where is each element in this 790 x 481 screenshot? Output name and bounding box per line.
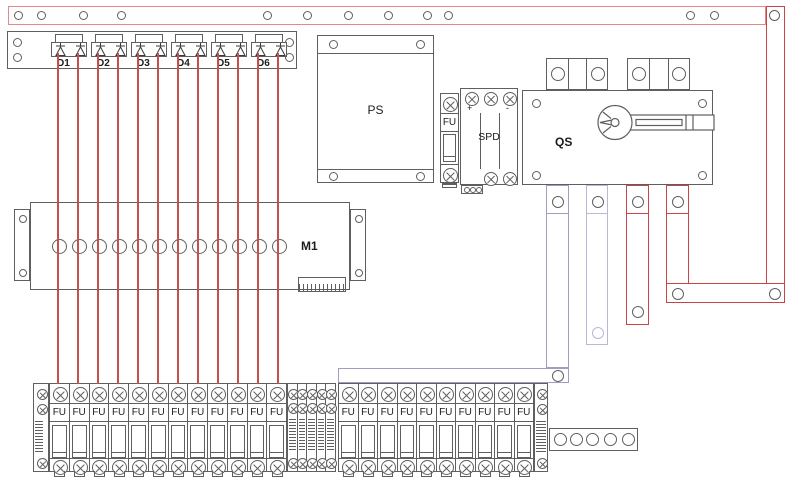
tab-divider: [568, 59, 569, 91]
aux-hole: [604, 433, 617, 446]
terminal-bottom-section: [50, 458, 69, 474]
terminal-fuse-section: [417, 422, 436, 458]
fuse-terminal-label: FU: [70, 404, 89, 422]
diode-label: D5: [217, 58, 230, 69]
fuse-terminal-label: FU: [378, 404, 397, 422]
fuse-terminal-label: FU: [437, 404, 456, 422]
terminal-top-section: [398, 384, 417, 404]
clamp-spring: [327, 419, 334, 451]
fuse-window: [380, 425, 395, 458]
terminal-fuse-section: [437, 422, 456, 458]
screw-terminal-icon: [250, 387, 265, 402]
monitor-module-flange-right: [350, 209, 366, 281]
feedthrough-terminal: [317, 384, 327, 471]
terminal-bottom-section: [417, 458, 436, 474]
wire-hole: [192, 239, 207, 254]
fuse-terminal-label: FU: [398, 404, 417, 422]
diode-symbol-icon: [194, 43, 207, 57]
screw-terminal-icon: [326, 403, 337, 414]
clamp-spring: [308, 419, 315, 451]
rail-hole: [444, 11, 453, 20]
fuse-window: [131, 425, 146, 458]
wire-hole: [272, 239, 287, 254]
fuse-terminal: FU: [169, 384, 189, 471]
wire-hole: [252, 239, 267, 254]
tab-divider: [649, 59, 650, 91]
terminal-bottom-section: [515, 458, 534, 474]
feedthrough-terminal: [288, 384, 298, 471]
screw-terminal-icon: [231, 460, 246, 475]
spd-plus-mark: +: [467, 103, 472, 113]
screw-terminal-icon: [326, 458, 337, 469]
fuse-window: [439, 425, 454, 458]
clamp-spring: [299, 419, 306, 451]
fuse-terminal-label: FU: [90, 404, 109, 422]
mounting-hole: [698, 171, 707, 180]
terminal-fuse-section: [339, 422, 358, 458]
terminal-fuse-section: [248, 422, 267, 458]
diode-bracket: [135, 34, 163, 42]
screw-terminal-icon: [503, 172, 517, 186]
terminal-fuse-section: [188, 422, 207, 458]
fuse-bottom-section: [441, 164, 458, 185]
busbar-hole: [632, 306, 644, 318]
busbar-hole: [672, 288, 684, 300]
fuse-window: [341, 425, 356, 458]
mounting-hole: [532, 171, 541, 180]
screw-terminal-icon: [381, 387, 396, 402]
fuse-terminal: FU: [90, 384, 110, 471]
fuse-terminal-label: FU: [50, 404, 69, 422]
busbar-hole: [769, 288, 781, 300]
terminal-fuse-section: [149, 422, 168, 458]
terminal-bottom-section: [456, 458, 475, 474]
spd-module: + - SPD: [460, 88, 518, 185]
terminal-fuse-section: [208, 422, 227, 458]
fuse-window: [497, 425, 512, 458]
screw-terminal-icon: [439, 460, 454, 475]
screw-terminal-icon: [73, 387, 88, 402]
terminal-top-section: [188, 384, 207, 404]
busbar-hole: [592, 327, 604, 339]
right-red-busbar: [766, 6, 785, 303]
busbar-horizontal-link: [666, 283, 785, 303]
power-supply-box: PS: [317, 35, 434, 183]
mounting-hole: [416, 172, 425, 181]
diode-label: D1: [57, 58, 70, 69]
terminal-bottom-section: [267, 458, 286, 474]
flange-line: [318, 53, 433, 54]
terminal-bottom-section: [359, 458, 378, 474]
screw-terminal-icon: [326, 389, 337, 400]
diode-symbol-icon: [154, 43, 167, 57]
screw-terminal-icon: [152, 460, 167, 475]
screw-terminal-icon: [537, 458, 548, 469]
power-supply-label: PS: [318, 103, 433, 117]
terminal-top-section: [515, 384, 534, 404]
fuse-terminal-label: FU: [228, 404, 247, 422]
terminal-fuse-section: [50, 422, 69, 458]
screw-terminal-icon: [498, 387, 513, 402]
aux-hole: [554, 433, 567, 446]
screw-terminal-icon: [250, 460, 265, 475]
mounting-hole: [329, 40, 338, 49]
screw-terminal-icon: [400, 460, 415, 475]
screw-terminal-icon: [400, 387, 415, 402]
busbar-positive-1: [626, 185, 649, 325]
terminal-top-section: [378, 384, 397, 404]
screw-terminal-icon: [361, 387, 376, 402]
terminal-hole: [551, 67, 565, 81]
screw-terminal-icon: [270, 460, 285, 475]
screw-terminal-icon: [37, 389, 48, 400]
terminal-top-section: [50, 384, 69, 404]
terminal-hole: [632, 67, 646, 81]
terminal-bottom-section: [188, 458, 207, 474]
clamp-spring: [289, 419, 296, 451]
comb-connector: [298, 277, 346, 292]
terminal-fuse-section: [109, 422, 128, 458]
diode-bracket: [95, 34, 123, 42]
rail-hole: [14, 11, 23, 20]
spd-minus-mark: -: [506, 103, 509, 113]
terminal-bottom-section: [129, 458, 148, 474]
terminal-bottom-section: [398, 458, 417, 474]
screw-terminal-icon: [211, 460, 226, 475]
switch-terminal-tabs-top-right: [627, 58, 690, 90]
spd-pigtail-connector: [461, 185, 483, 194]
screw-terminal-icon: [92, 460, 107, 475]
terminal-bottom-section: [169, 458, 188, 474]
terminal-fuse-section: [398, 422, 417, 458]
busbar-hole: [672, 196, 684, 208]
wire-hole: [172, 239, 187, 254]
terminal-bottom-section: [109, 458, 128, 474]
busbar-negative-1: [546, 185, 569, 368]
switch-rotary-handle: [596, 103, 718, 143]
diode-symbol-icon: [254, 43, 267, 57]
fuse-terminal: FU: [417, 384, 437, 471]
fuse-terminal-label: FU: [359, 404, 378, 422]
fuse-window: [478, 425, 493, 458]
terminal-fuse-section: [90, 422, 109, 458]
fuse-window: [443, 134, 456, 162]
tab-divider: [668, 59, 669, 91]
terminal-top-section: [248, 384, 267, 404]
fuse-window: [361, 425, 376, 458]
wire-hole: [212, 239, 227, 254]
fuse-window: [171, 425, 186, 458]
terminal-top-section: [109, 384, 128, 404]
fuse-terminal: FU: [437, 384, 457, 471]
rail-hole: [710, 11, 719, 20]
terminal-top-section: [359, 384, 378, 404]
terminal-top-section: [149, 384, 168, 404]
mounting-hole: [19, 215, 27, 223]
comb-teeth: [299, 284, 345, 291]
fuse-terminal-label: FU: [208, 404, 227, 422]
terminal-bottom-section: [149, 458, 168, 474]
feeder-bar-group2: [338, 368, 569, 383]
screw-terminal-icon: [420, 460, 435, 475]
terminal-bottom-section: [70, 458, 89, 474]
fuse-terminal: FU: [476, 384, 496, 471]
feedthrough-terminal: [307, 384, 317, 471]
fuse-terminal: FU: [456, 384, 476, 471]
terminal-top-section: [456, 384, 475, 404]
rail-hole: [37, 11, 46, 20]
feedthrough-terminal: [298, 384, 308, 471]
aux-hole: [570, 433, 583, 446]
diode-bracket: [55, 34, 83, 42]
screw-terminal-icon: [517, 387, 532, 402]
fuse-terminal-label: FU: [188, 404, 207, 422]
monitor-module-body: M1: [30, 202, 350, 290]
terminal-top-section: [476, 384, 495, 404]
diode-module: [131, 42, 167, 57]
rail-hole: [117, 11, 126, 20]
busbar-hole: [592, 196, 604, 208]
wire-hole: [152, 239, 167, 254]
terminal-hole: [672, 67, 686, 81]
mounting-hole: [416, 40, 425, 49]
terminal-top-section: [169, 384, 188, 404]
mounting-hole: [13, 38, 22, 47]
fuse-terminal-label: FU: [476, 404, 495, 422]
terminal-fuse-section: [129, 422, 148, 458]
wire-hole: [52, 239, 67, 254]
diode-module: [211, 42, 247, 57]
screw-terminal-icon: [537, 404, 548, 415]
terminal-fuse-section: [515, 422, 534, 458]
terminal-top-section: [129, 384, 148, 404]
screw-terminal-icon: [37, 404, 48, 415]
diode-symbol-icon: [94, 43, 107, 57]
diode-symbol-icon: [54, 43, 67, 57]
tab-divider: [586, 59, 587, 91]
diode-module: [171, 42, 207, 57]
fuse-window: [230, 425, 245, 458]
terminal-bottom-section: [228, 458, 247, 474]
fuse-window: [151, 425, 166, 458]
screw-terminal-icon: [231, 387, 246, 402]
terminal-top-section: [437, 384, 456, 404]
terminal-bottom-section: [90, 458, 109, 474]
screw-terminal-icon: [191, 387, 206, 402]
fuse-terminal-group-2: FUFUFUFUFUFUFUFUFUFU: [338, 383, 534, 472]
fuse-window: [190, 425, 205, 458]
terminal-bottom-section: [378, 458, 397, 474]
fuse-terminal-label: FU: [515, 404, 534, 422]
feedthrough-terminal: [326, 384, 335, 471]
screw-terminal-icon: [537, 389, 548, 400]
fuse-terminal: FU: [228, 384, 248, 471]
screw-terminal-icon: [381, 460, 396, 475]
connector-hole: [476, 187, 482, 193]
diode-symbol-icon: [234, 43, 247, 57]
tab-joint-line: [627, 213, 648, 214]
fuse-terminal: FU: [129, 384, 149, 471]
screw-terminal-icon: [478, 387, 493, 402]
screw-terminal-icon: [270, 387, 285, 402]
fuse-window: [400, 425, 415, 458]
terminal-top-section: [267, 384, 286, 404]
screw-terminal-icon: [73, 460, 88, 475]
screw-terminal-icon: [112, 387, 127, 402]
screw-terminal-icon: [132, 460, 147, 475]
terminal-fuse-section: [359, 422, 378, 458]
screw-terminal-icon: [459, 460, 474, 475]
terminal-fuse-section: [378, 422, 397, 458]
disconnect-switch-label: QS: [555, 135, 572, 149]
fuse-terminal-label: FU: [267, 404, 286, 422]
busbar-hole: [552, 370, 564, 382]
wire-hole: [72, 239, 87, 254]
fuse-terminal-label: FU: [495, 404, 514, 422]
terminal-bottom-section: [339, 458, 358, 474]
fuse-terminal: FU: [109, 384, 129, 471]
screw-terminal-icon: [37, 458, 48, 469]
rail-hole: [303, 11, 312, 20]
screw-terminal-icon: [53, 387, 68, 402]
fuse-terminal: FU: [70, 384, 90, 471]
terminal-top-section: [228, 384, 247, 404]
screw-terminal-icon: [342, 460, 357, 475]
screw-terminal-icon: [361, 460, 376, 475]
mounting-hole: [355, 215, 363, 223]
terminal-bottom-section: [248, 458, 267, 474]
fuse-terminal: FU: [149, 384, 169, 471]
screw-terminal-icon: [132, 387, 147, 402]
fuse-window: [111, 425, 126, 458]
screw-terminal-icon: [478, 460, 493, 475]
busbar-hole: [552, 196, 564, 208]
terminal-fuse-section: [267, 422, 286, 458]
mounting-hole: [355, 269, 363, 277]
screw-terminal-icon: [112, 460, 127, 475]
screw-terminal-icon: [171, 387, 186, 402]
fuse-window: [419, 425, 434, 458]
diode-label: D3: [137, 58, 150, 69]
fuse-window: [517, 425, 532, 458]
busbar-negative-2: [586, 185, 608, 345]
tab-joint-line: [547, 213, 568, 214]
mounting-hole: [19, 269, 27, 277]
fuse-window: [210, 425, 225, 458]
terminal-top-section: [90, 384, 109, 404]
fuse-terminal: FU: [495, 384, 515, 471]
tab-joint-line: [667, 213, 688, 214]
diode-panel: D1D2D3D4D5D6: [7, 31, 297, 69]
screw-terminal-icon: [191, 460, 206, 475]
aux-hole: [622, 433, 635, 446]
terminal-fuse-section: [495, 422, 514, 458]
fuse-window: [72, 425, 87, 458]
flange-line: [318, 169, 433, 170]
fuse-terminal: FU: [188, 384, 208, 471]
fuse-terminal-label: FU: [169, 404, 188, 422]
diode-module: [251, 42, 287, 57]
terminal-fuse-section: [456, 422, 475, 458]
monitor-module-flange-left: [14, 209, 30, 281]
tab-joint-line: [587, 213, 607, 214]
fuse-terminal-label: FU: [456, 404, 475, 422]
screw-terminal-icon: [171, 460, 186, 475]
fuse-terminal: FU: [208, 384, 228, 471]
diode-bracket: [175, 34, 203, 42]
screw-terminal-icon: [443, 97, 458, 112]
clamp-spring: [35, 421, 43, 453]
fuse-holder-module: FU: [440, 93, 459, 183]
screw-terminal-icon: [484, 92, 498, 106]
fuse-terminal-label: FU: [129, 404, 148, 422]
terminal-hole: [591, 67, 605, 81]
diode-symbol-icon: [114, 43, 127, 57]
diode-symbol-icon: [274, 43, 287, 57]
terminal-fuse-section: [476, 422, 495, 458]
fuse-terminal-label: FU: [339, 404, 358, 422]
fuse-terminal: FU: [339, 384, 359, 471]
screw-terminal-icon: [484, 172, 498, 186]
fuse-terminal: FU: [515, 384, 534, 471]
fuse-terminal-label: FU: [417, 404, 436, 422]
spd-label: SPD: [461, 131, 517, 143]
terminal-bottom-section: [208, 458, 227, 474]
fuse-terminal-label: FU: [109, 404, 128, 422]
wire-hole: [92, 239, 107, 254]
fuse-terminal-group-1: FUFUFUFUFUFUFUFUFUFUFUFU: [49, 383, 287, 472]
fuse-window: [92, 425, 107, 458]
screw-terminal-icon: [53, 460, 68, 475]
fuse-top-section: [441, 94, 458, 114]
screw-terminal-icon: [211, 387, 226, 402]
fuse-window: [250, 425, 265, 458]
fuse-body: [441, 132, 458, 164]
terminal-fuse-section: [70, 422, 89, 458]
clamp-spring: [318, 419, 325, 451]
screw-terminal-icon: [152, 387, 167, 402]
end-plate-right: [534, 383, 548, 472]
rail-hole: [423, 11, 432, 20]
screw-terminal-icon: [342, 387, 357, 402]
terminal-fuse-section: [228, 422, 247, 458]
diode-bracket: [255, 34, 283, 42]
terminal-bottom-section: [437, 458, 456, 474]
mounting-hole: [329, 172, 338, 181]
wire-hole: [232, 239, 247, 254]
terminal-top-section: [417, 384, 436, 404]
fuse-terminal-label: FU: [248, 404, 267, 422]
rail-hole: [344, 11, 353, 20]
screw-terminal-icon: [439, 387, 454, 402]
screw-terminal-icon: [420, 387, 435, 402]
diode-label: D6: [257, 58, 270, 69]
monitor-module-label: M1: [301, 239, 318, 253]
screw-terminal-icon: [517, 460, 532, 475]
rail-hole: [686, 11, 695, 20]
fuse-terminal: FU: [359, 384, 379, 471]
wire-hole: [112, 239, 127, 254]
mounting-hole: [532, 99, 541, 108]
terminal-fuse-section: [169, 422, 188, 458]
aux-hole: [586, 433, 599, 446]
diode-module: [51, 42, 87, 57]
fuse-terminal: FU: [248, 384, 268, 471]
clamp-spring: [536, 421, 546, 453]
fuse-terminal: FU: [50, 384, 70, 471]
fuse-module-label: FU: [441, 114, 458, 132]
busbar-hole: [769, 10, 780, 21]
